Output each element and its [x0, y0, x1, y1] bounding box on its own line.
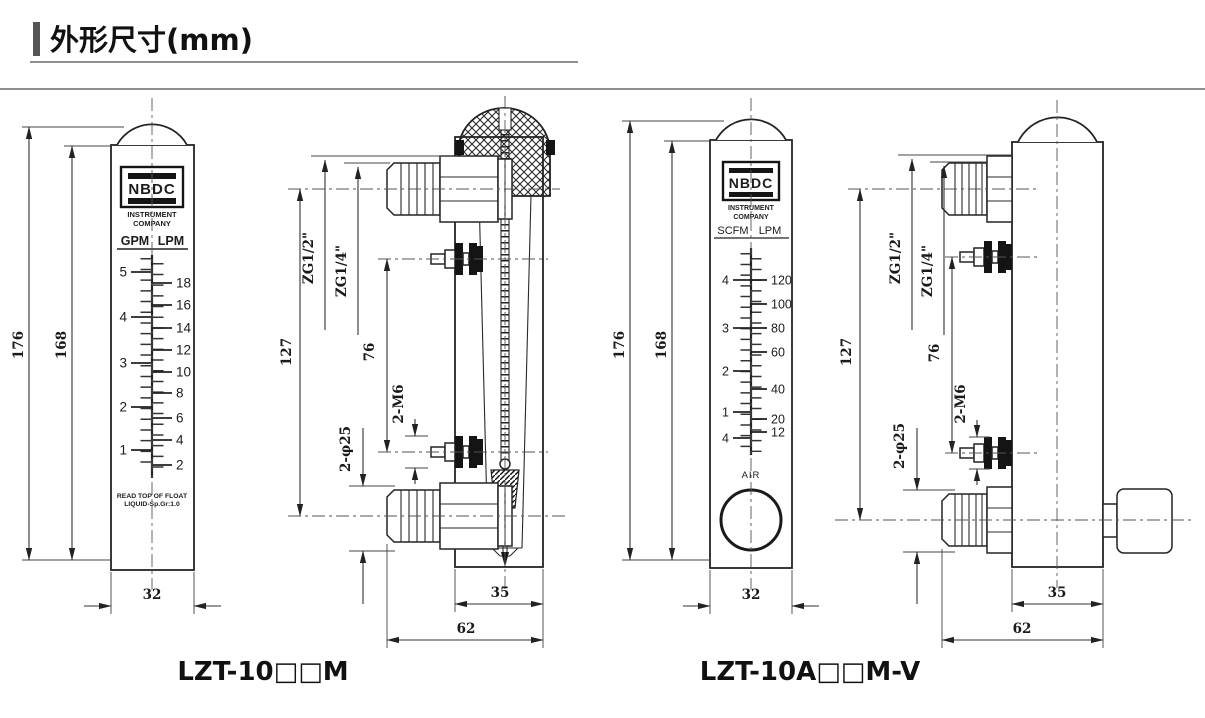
- scale-label-left: 2: [722, 365, 729, 379]
- valve-knob-side: [1117, 489, 1172, 553]
- datasheet-page: 外形尺寸(mm) NBDC INSTRUMENT COMPANY GPM LPM…: [0, 0, 1205, 718]
- model2-label: LZT-10A□□M-V: [700, 657, 920, 687]
- scale-label-right: 40: [771, 383, 785, 397]
- scale-label-left: 5: [119, 265, 127, 280]
- scale-label-left: 4: [722, 274, 729, 288]
- scale-label-right: 10: [176, 365, 191, 380]
- meter2-unit-left: SCFM: [717, 225, 748, 237]
- scale-label-left: 2: [119, 400, 127, 415]
- meter1-front-view: NBDC INSTRUMENT COMPANY GPM LPM 54321181…: [111, 98, 194, 590]
- outlet-fitting: [942, 487, 1012, 553]
- dim-height-outer: 176: [612, 331, 628, 359]
- dim-length: 127: [279, 338, 295, 366]
- scale-label-right: 18: [176, 276, 191, 291]
- dim-depth: 35: [1048, 585, 1067, 601]
- scale-label-right: 8: [176, 386, 184, 401]
- meter1-unit-right: LPM: [158, 234, 184, 248]
- scale-label-right: 2: [176, 458, 184, 473]
- scale-label-right: 120: [771, 274, 792, 288]
- scale-label-right: 4: [176, 433, 184, 448]
- scale-label-right: 100: [771, 298, 792, 312]
- title-accent-bar: [33, 22, 40, 56]
- scale-label-right: 6: [176, 411, 184, 426]
- meter2-unit-right: LPM: [759, 225, 782, 237]
- dim-mount-thread: 2-M6: [391, 384, 407, 423]
- scale-label-right: 12: [176, 343, 191, 358]
- dim-port-span: 76: [362, 343, 378, 362]
- meter1-unit-left: GPM: [121, 234, 149, 248]
- meter2-front-view: NBDC INSTRUMENT COMPANY SCFM LPM 4321412…: [710, 98, 792, 590]
- scale-label-left: 3: [722, 322, 729, 336]
- dim-total-depth: 62: [1013, 621, 1032, 637]
- dim-height-inner: 168: [54, 331, 70, 359]
- scale-label-left: 1: [119, 443, 127, 458]
- scale-label-left: 4: [722, 432, 729, 446]
- meter2-side-dome: [1018, 117, 1097, 142]
- scale-label-left: 4: [119, 310, 127, 325]
- scale-label-left: 1: [722, 406, 729, 420]
- meter2-side-view: [835, 100, 1195, 588]
- dim-inlet-thread: ZG1/2": [301, 232, 317, 284]
- dim-inlet-thread: ZG1/2": [888, 232, 904, 284]
- dim-port-span: 76: [927, 344, 943, 363]
- scale-label-right: 12: [771, 426, 785, 440]
- dim-width: 32: [143, 587, 162, 603]
- dim-total-depth: 62: [457, 621, 476, 637]
- dim-mount-dia: 2-φ25: [892, 423, 908, 469]
- dim-width: 32: [742, 587, 761, 603]
- scale-label-right: 20: [771, 413, 785, 427]
- scale-label-right: 16: [176, 298, 191, 313]
- dim-height-inner: 168: [654, 331, 670, 359]
- page-title: 外形尺寸(mm): [50, 23, 253, 57]
- dim-aux-thread: ZG1/4": [334, 245, 350, 297]
- model1-label: LZT-10□□M: [177, 657, 348, 687]
- scale-label-right: 60: [771, 346, 785, 360]
- dim-length: 127: [839, 338, 855, 366]
- scale-label-right: 14: [176, 321, 192, 336]
- dim-height-outer: 176: [11, 331, 27, 359]
- page-header: 外形尺寸(mm): [0, 22, 1205, 89]
- dim-mount-thread: 2-M6: [953, 384, 969, 423]
- meter1-side-view: [288, 96, 565, 590]
- knob-stem: [1103, 504, 1117, 537]
- meter2-block-body: [1012, 142, 1103, 567]
- dim-mount-dia: 2-φ25: [338, 426, 354, 472]
- dim-aux-thread: ZG1/4": [920, 245, 936, 297]
- dim-depth: 35: [491, 585, 510, 601]
- scale-label-left: 3: [119, 356, 127, 371]
- scale-label-right: 80: [771, 322, 785, 336]
- dimension-drawing: 外形尺寸(mm) NBDC INSTRUMENT COMPANY GPM LPM…: [0, 0, 1205, 718]
